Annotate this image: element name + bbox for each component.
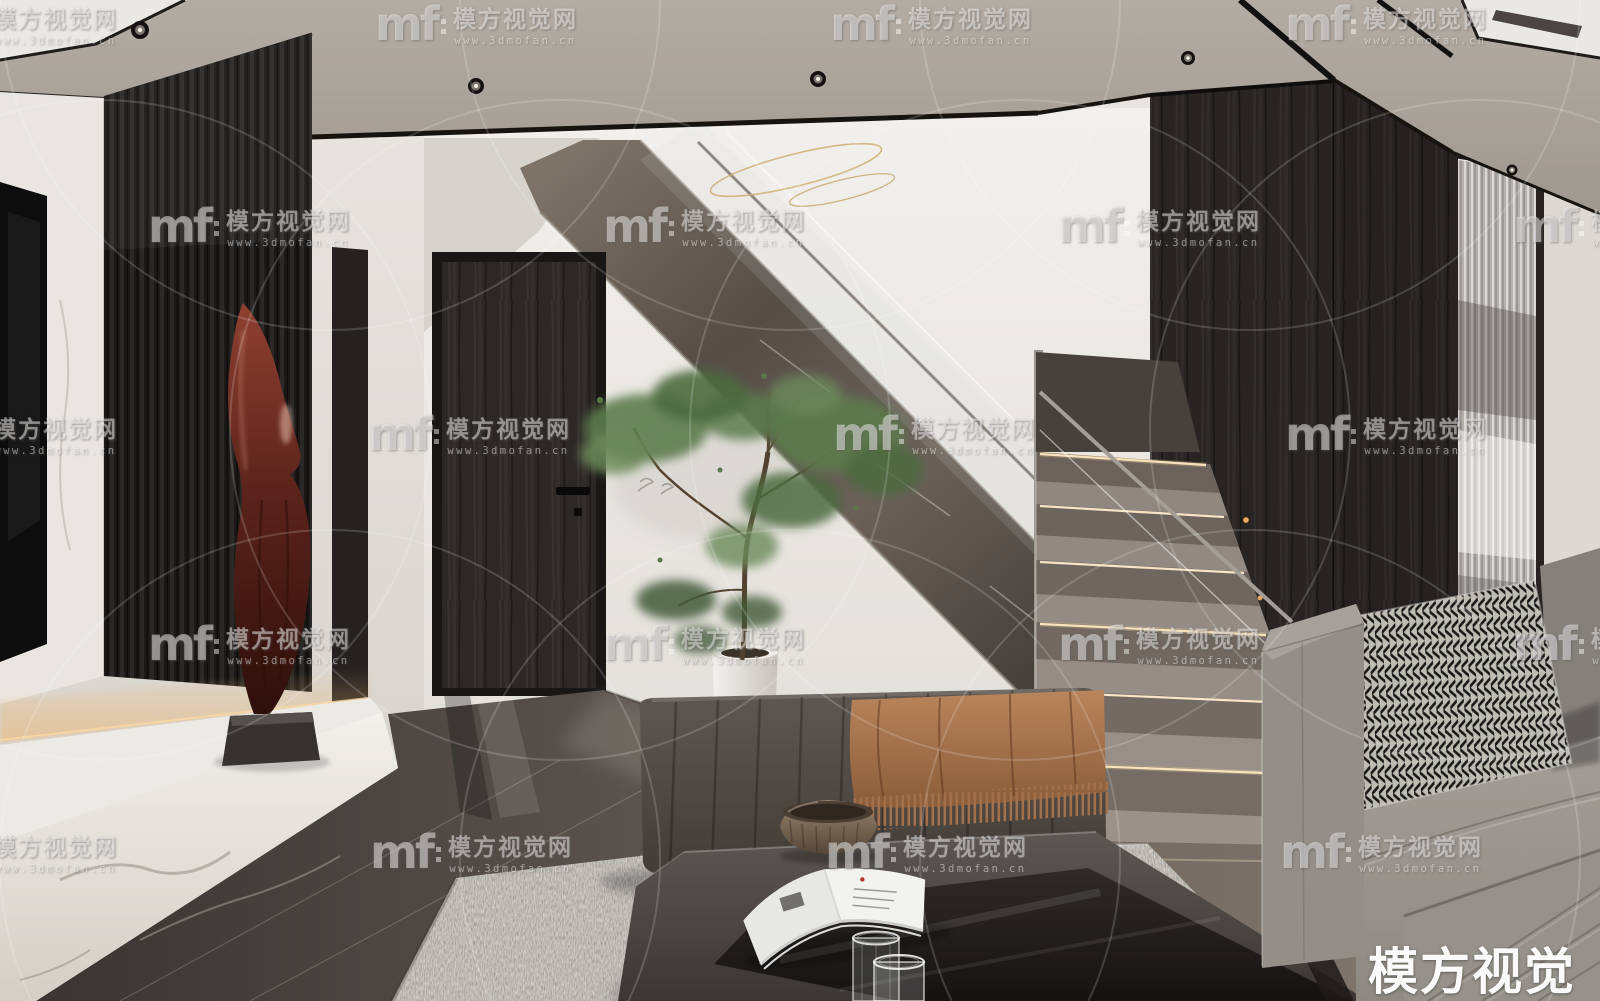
living-room-render bbox=[0, 0, 1600, 1001]
door-handle bbox=[556, 487, 590, 495]
wall-accent-light bbox=[1243, 517, 1249, 523]
landing-face bbox=[1036, 352, 1200, 452]
wooden-bowl bbox=[780, 800, 880, 864]
black-door-partial bbox=[332, 247, 368, 702]
door-lock bbox=[574, 508, 582, 516]
interior-render-screenshot: mf模方视觉网www.3dmofan.cnmf模方视觉网www.3dmofan.… bbox=[0, 0, 1600, 1001]
sofa-armrest bbox=[1262, 604, 1364, 968]
